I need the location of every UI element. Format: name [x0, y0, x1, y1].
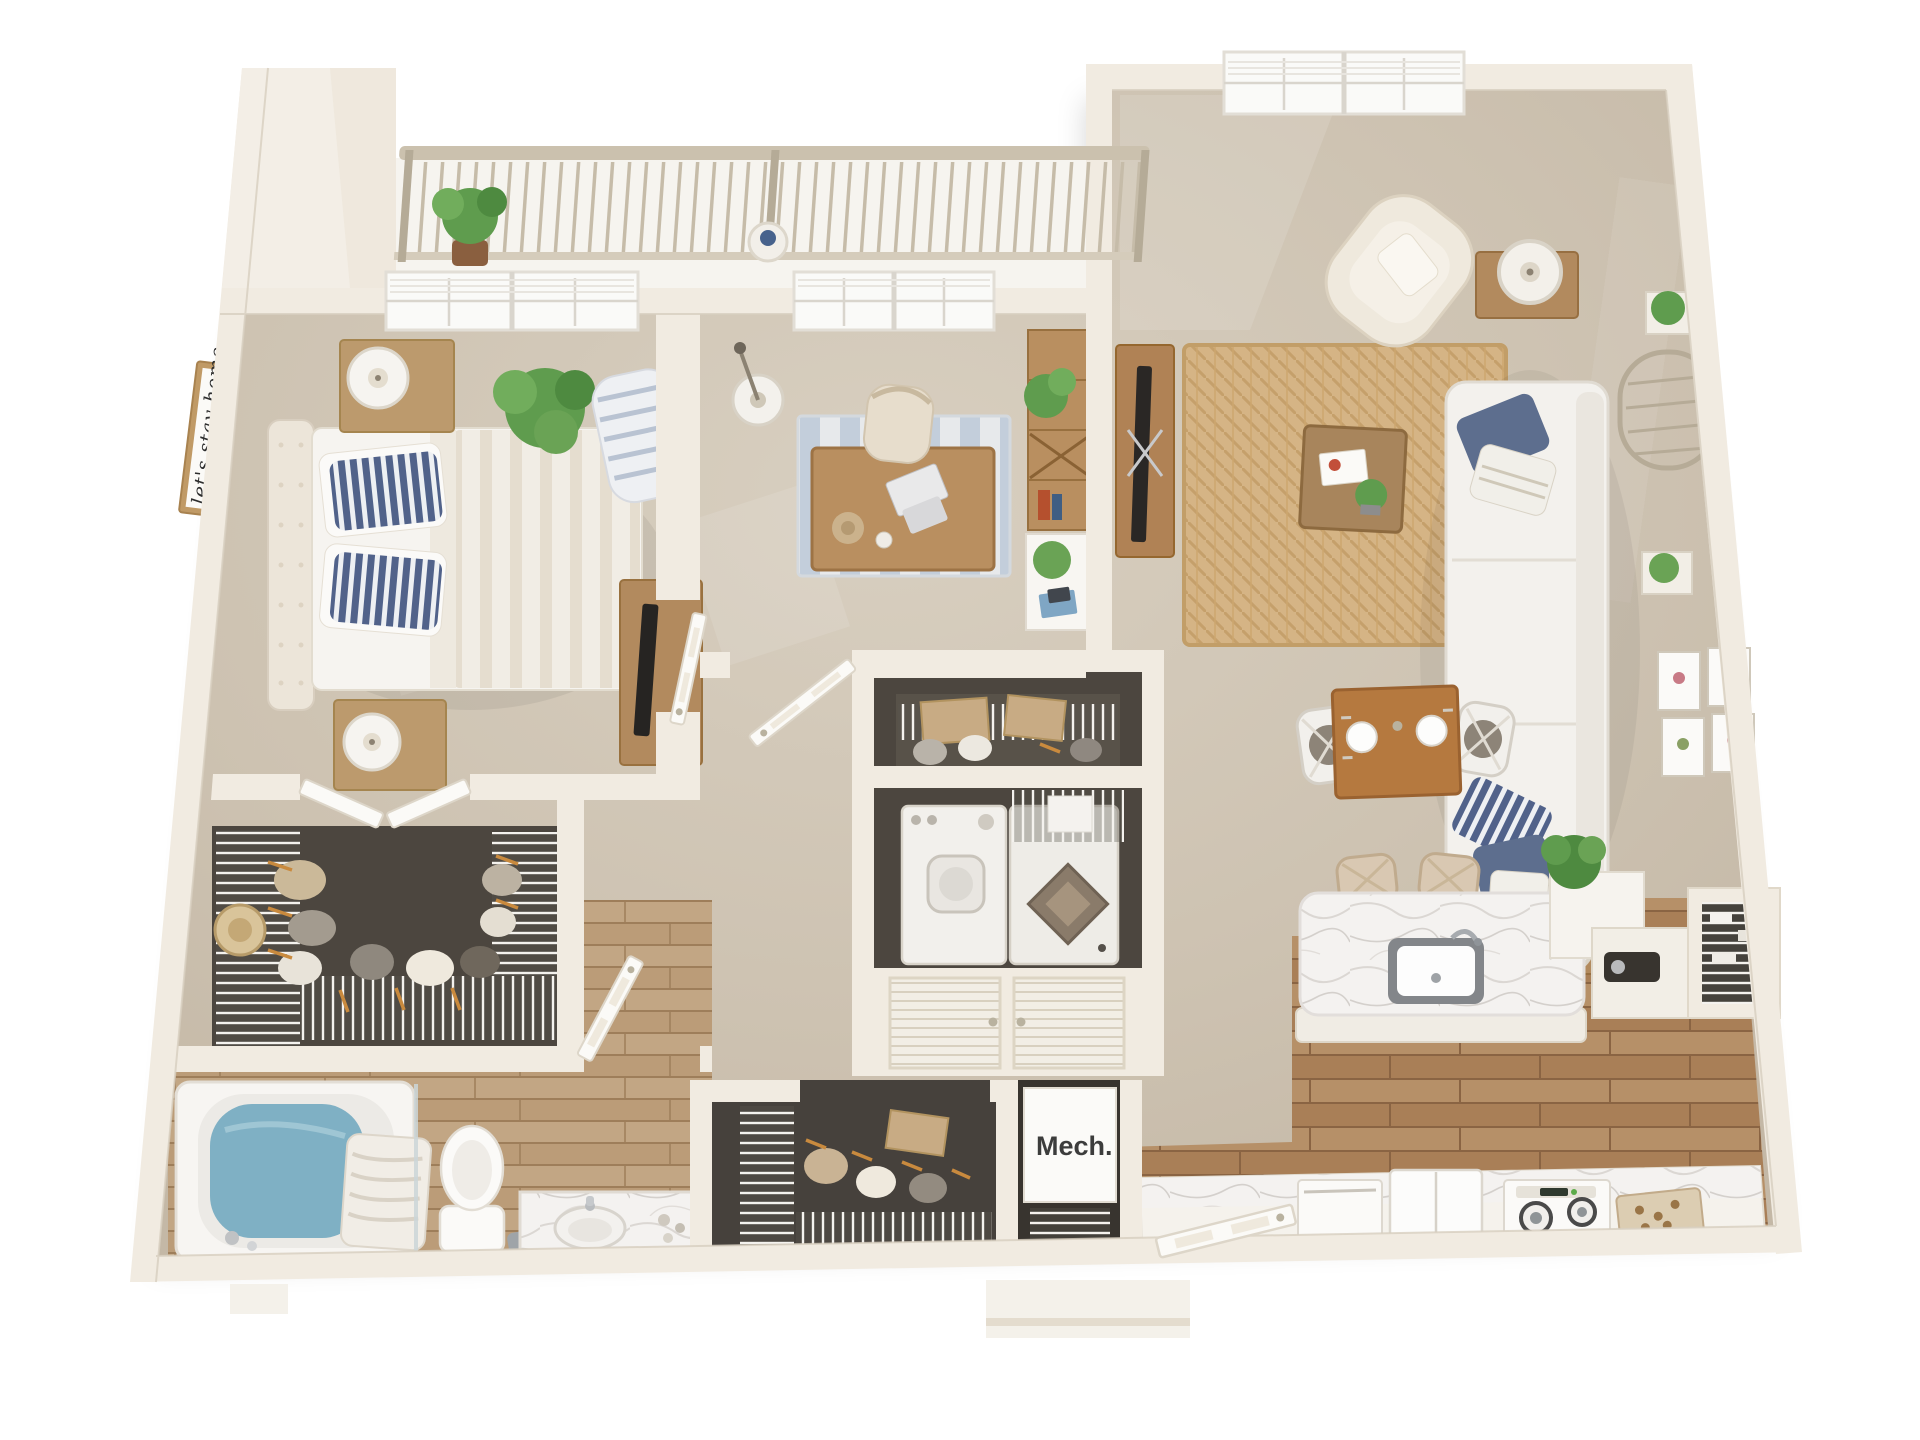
wall-plant-1 [1651, 291, 1685, 325]
side-step [230, 1284, 288, 1314]
nightstand-north [340, 340, 454, 432]
storage-box-2 [1004, 695, 1066, 741]
floor-plan-stage: let's stay home [0, 0, 1920, 1440]
office-window [794, 272, 994, 330]
mech-label: Mech. [1036, 1131, 1113, 1161]
headboard [268, 420, 314, 710]
hall-wood-floor [584, 900, 712, 1072]
closet-box [886, 1110, 949, 1156]
bottom-closet-block: Mech. [712, 1080, 1142, 1256]
louvered-doors [874, 968, 1142, 1076]
living-window [1224, 52, 1464, 114]
office-desk [812, 448, 994, 570]
office-south-wall-a [700, 652, 730, 678]
coat-closet [896, 694, 1120, 768]
bedroom-window [386, 272, 638, 330]
magazine [1319, 449, 1368, 486]
bedroom-east-wall [656, 314, 700, 600]
sofa [1420, 370, 1640, 930]
navy-pillow-1 [329, 451, 444, 532]
office-cabinet [1026, 534, 1090, 630]
tub-towel [340, 1133, 432, 1251]
laundry-closet [902, 790, 1124, 964]
navy-pillow-2 [329, 551, 443, 630]
cabinet-plant [1033, 541, 1071, 579]
place-setting-2 [1416, 715, 1447, 746]
balcony [392, 146, 1150, 288]
balcony-divider-wall [1086, 64, 1112, 314]
dryer [1010, 790, 1124, 964]
office-bookshelf [1024, 330, 1094, 530]
hall-closet-block [874, 672, 1142, 1076]
bedroom-south-wall-b [470, 774, 700, 800]
washer [902, 806, 1006, 964]
kitchen-peninsula [1296, 893, 1586, 1042]
nightstand-south [334, 700, 446, 790]
dining-table [1332, 686, 1461, 798]
closet-block-frame-top [874, 650, 1142, 672]
tv-console [1116, 345, 1174, 557]
bottom-block-top-b [990, 1080, 1018, 1102]
end-table-north [1476, 241, 1578, 318]
bathtub [176, 1082, 432, 1260]
bedroom-south-wall-a [211, 774, 300, 800]
wall-plant-2 [1649, 553, 1679, 583]
place-setting-1 [1346, 722, 1377, 753]
bottom-block-top-a [712, 1080, 800, 1102]
mech-closet: Mech. [1018, 1080, 1120, 1256]
balc-table [749, 223, 787, 261]
walkin-east-wall [557, 800, 584, 1050]
bath-north-wall-b [700, 1046, 712, 1072]
floor-plan-svg: let's stay home [0, 0, 1920, 1440]
entry-stoop [986, 1280, 1190, 1338]
office-chair [862, 383, 936, 465]
living-west-wall [1086, 314, 1112, 660]
bath-north-wall-a [173, 1046, 584, 1072]
coffee-table [1299, 425, 1406, 532]
kitchen-sink [1388, 931, 1484, 1004]
